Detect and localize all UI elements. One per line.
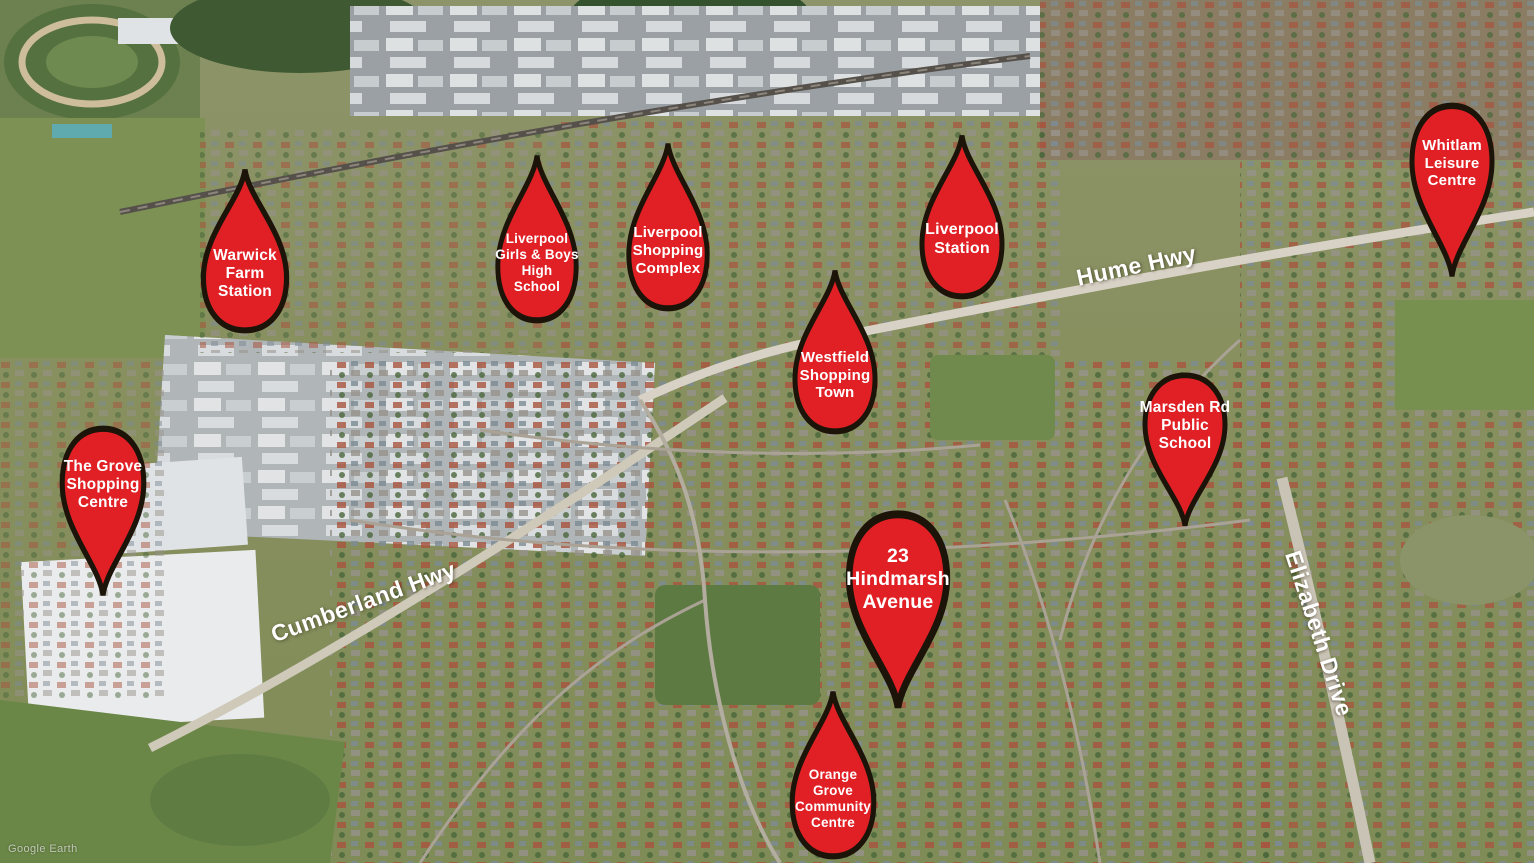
marker-liverpool-station: Liverpool Station bbox=[912, 132, 1012, 300]
marker-label: Warwick Farm Station bbox=[197, 226, 293, 322]
marker-whitlam-leisure-centre: Whitlam Leisure Centre bbox=[1402, 102, 1502, 280]
marker-label: Liverpool Station bbox=[916, 192, 1008, 288]
marker-label: Marsden Rd Public School bbox=[1139, 383, 1231, 469]
marker-label: Liverpool Shopping Complex bbox=[623, 202, 713, 300]
google-earth-watermark: Google Earth bbox=[8, 843, 78, 855]
marker-westfield-shopping-town: Westfield Shopping Town bbox=[785, 267, 885, 435]
marker-liverpool-girls-boys-high-school: Liverpool Girls & Boys High School bbox=[488, 152, 586, 324]
marker-23-hindmarsh-avenue: 23 Hindmarsh Avenue bbox=[837, 510, 959, 712]
marker-label: 23 Hindmarsh Avenue bbox=[842, 524, 954, 635]
marker-label: Liverpool Girls & Boys High School bbox=[492, 214, 582, 312]
aerial-map: Warwick Farm Station Liverpool Girls & B… bbox=[0, 0, 1534, 863]
marker-label: The Grove Shopping Centre bbox=[56, 437, 150, 533]
marker-label: Orange Grove Community Centre bbox=[786, 750, 880, 848]
marker-orange-grove-community-centre: Orange Grove Community Centre bbox=[782, 688, 884, 860]
marker-label: Westfield Shopping Town bbox=[789, 327, 881, 423]
marker-warwick-farm-station: Warwick Farm Station bbox=[193, 166, 297, 334]
marker-label: Whitlam Leisure Centre bbox=[1406, 114, 1498, 212]
marker-liverpool-shopping-complex: Liverpool Shopping Complex bbox=[619, 140, 717, 312]
satellite-background bbox=[0, 0, 1534, 863]
marker-the-grove-shopping-centre: The Grove Shopping Centre bbox=[52, 425, 154, 599]
marker-marsden-rd-public-school: Marsden Rd Public School bbox=[1135, 372, 1235, 529]
